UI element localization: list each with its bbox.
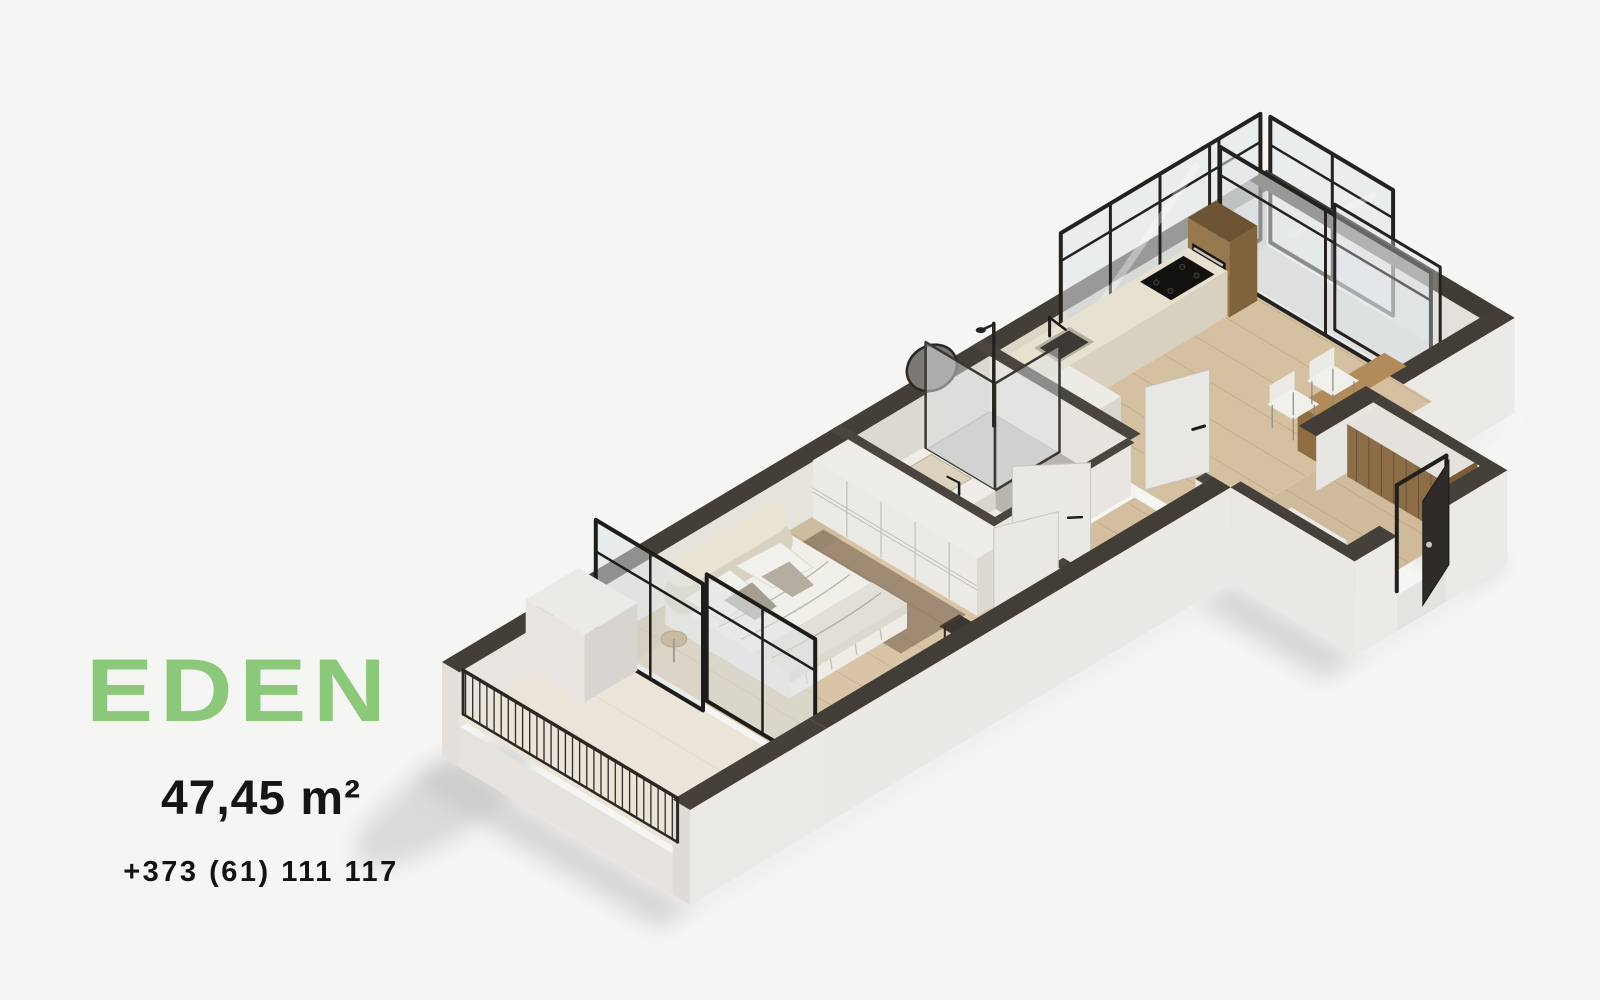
project-title: EDEN — [86, 646, 482, 735]
project-info: EDEN 47,45 m² +373 (61) 111 117 — [86, 646, 436, 889]
area-label: 47,45 m² — [86, 771, 436, 826]
flyer-page: EDEN 47,45 m² +373 (61) 111 117 — [0, 0, 1600, 1000]
phone-number: +373 (61) 111 117 — [86, 856, 436, 889]
